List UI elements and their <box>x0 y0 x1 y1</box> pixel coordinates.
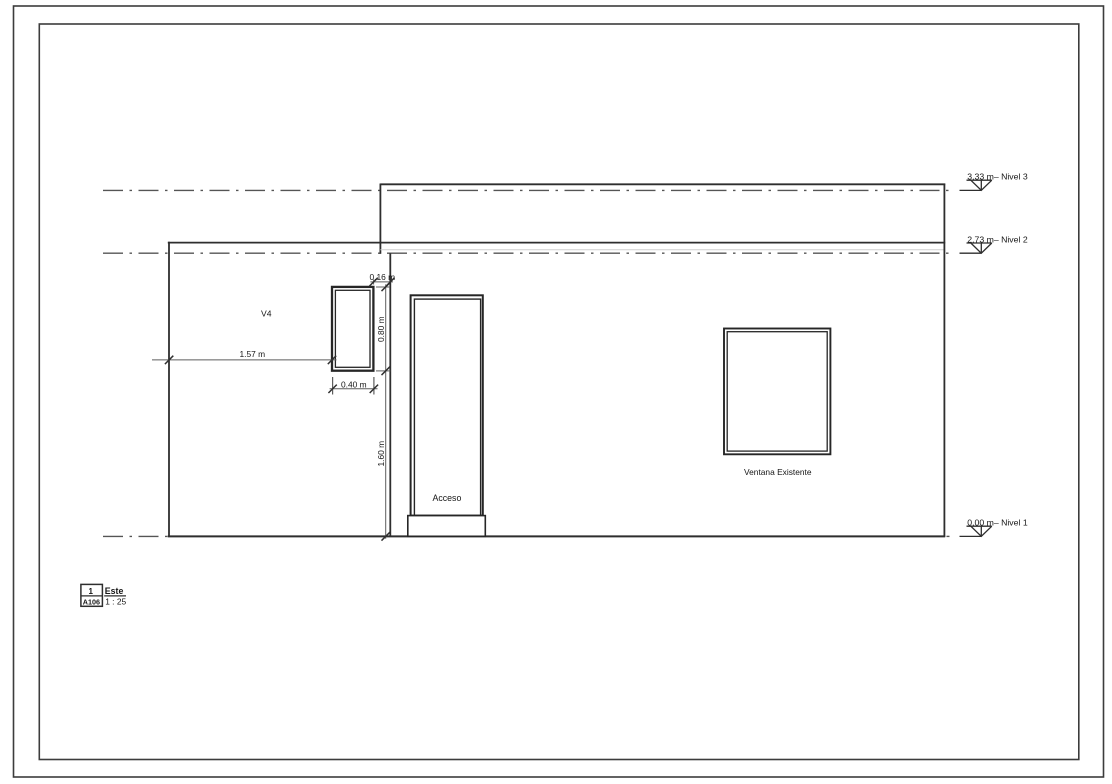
svg-text:0.16 m: 0.16 m <box>370 272 396 282</box>
svg-text:0.80 m: 0.80 m <box>376 316 386 342</box>
svg-text:A106: A106 <box>83 597 100 606</box>
svg-text:1.60 m: 1.60 m <box>376 441 386 467</box>
svg-text:0.40 m: 0.40 m <box>341 379 367 389</box>
svg-text:Este: Este <box>105 586 124 596</box>
svg-text:V4: V4 <box>261 308 272 318</box>
svg-text:2.73 m– Nivel 2: 2.73 m– Nivel 2 <box>967 234 1028 244</box>
svg-text:3.33 m– Nivel 3: 3.33 m– Nivel 3 <box>967 172 1028 182</box>
svg-text:1: 1 <box>89 587 94 596</box>
svg-text:0.00 m– Nivel 1: 0.00 m– Nivel 1 <box>967 518 1028 528</box>
svg-text:Acceso: Acceso <box>433 493 462 503</box>
svg-text:1.57 m: 1.57 m <box>240 349 266 359</box>
svg-text:Ventana Existente: Ventana Existente <box>744 467 812 477</box>
svg-text:1 : 25: 1 : 25 <box>105 597 126 607</box>
